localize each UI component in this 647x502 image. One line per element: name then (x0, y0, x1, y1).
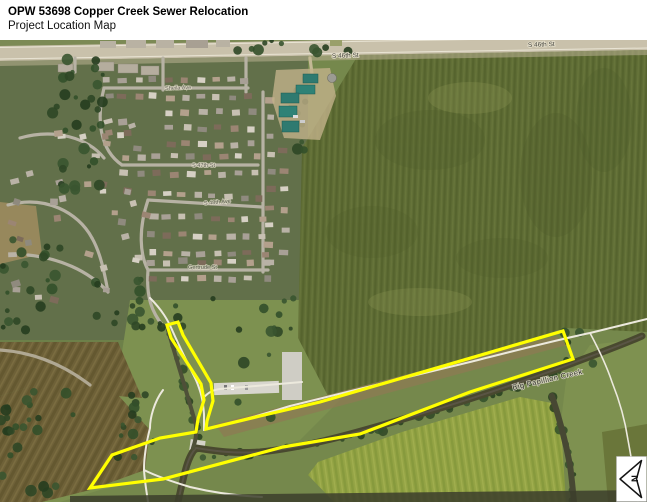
project-location-map-page: OPW 53698 Copper Creek Sewer Relocation … (0, 0, 647, 502)
road-label: S 46th St (528, 41, 555, 49)
project-title: OPW 53698 Copper Creek Sewer Relocation (8, 6, 248, 18)
street-label: S 47th St (192, 163, 215, 169)
aerial-map: S 46th St S 46th St Sheila Ave S 47th St… (0, 40, 647, 502)
street-label: Gertrude St (188, 265, 217, 271)
aerial-imagery: S 46th St S 46th St Sheila Ave S 47th St… (0, 40, 647, 502)
map-header: OPW 53698 Copper Creek Sewer Relocation … (0, 0, 647, 40)
road-label: S 46th St (332, 52, 359, 60)
north-arrow-icon: N (617, 457, 647, 502)
street-label: Sheila Ave (165, 85, 192, 92)
project-subtitle: Project Location Map (8, 20, 116, 32)
north-letter: N (630, 475, 641, 482)
